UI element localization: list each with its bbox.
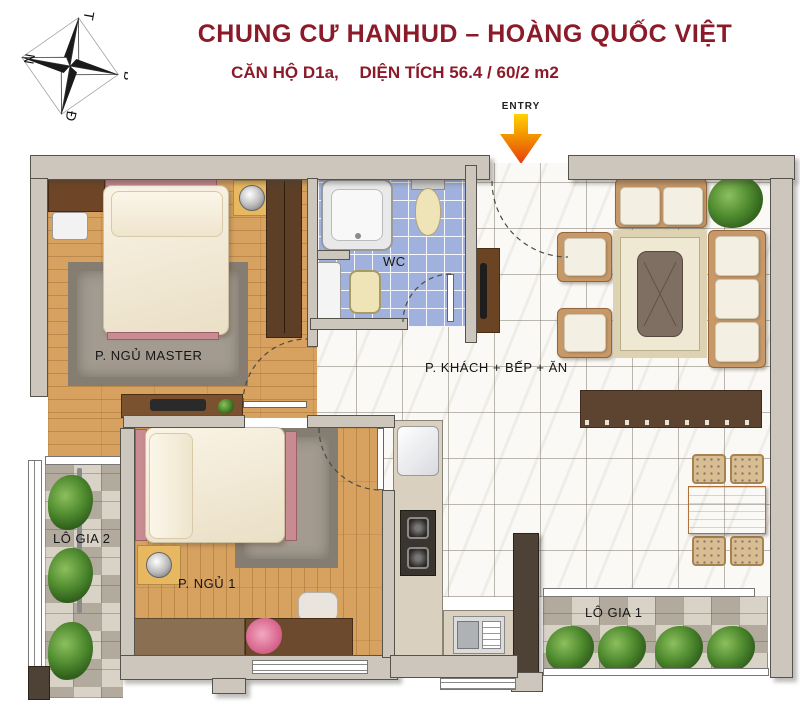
- sofa-cushion: [715, 322, 759, 362]
- sofa-cushion: [620, 187, 660, 225]
- bedroom1-door-leaf: [377, 428, 384, 490]
- wall-wc-bottom: [310, 318, 408, 330]
- coffee-table: [637, 251, 683, 337]
- sofa-cushion: [715, 279, 759, 319]
- master-wardrobe: [266, 178, 302, 338]
- master-bedroom-label: P. NGỦ MASTER: [95, 348, 202, 363]
- dining-table: [688, 486, 766, 534]
- wall-wc-right: [465, 165, 477, 343]
- wc-label: WC: [383, 254, 406, 269]
- sideboard-handles: [585, 420, 757, 425]
- armchair-cushion: [564, 238, 606, 276]
- bedroom1-lamp-icon: [146, 552, 172, 578]
- compass-west-label: T: [80, 10, 97, 22]
- wc-sink: [349, 270, 381, 314]
- armchair-cushion: [564, 314, 606, 352]
- master-door-leaf: [243, 401, 307, 408]
- unit-area: DIỆN TÍCH 56.4 / 60/2 m2: [360, 63, 559, 82]
- toilet-bowl: [415, 188, 441, 236]
- master-lamp-icon: [239, 185, 265, 211]
- loggia1-label: LÔ GIA 1: [585, 605, 642, 620]
- page-subtitle: CĂN HỘ D1a, DIỆN TÍCH 56.4 / 60/2 m2: [195, 63, 595, 83]
- wall-bedroom1-right: [382, 490, 395, 658]
- loggia2-corner-pier: [28, 666, 50, 700]
- loggia2-door-sill: [45, 456, 123, 465]
- bedroom1-nightstand: [137, 545, 181, 585]
- master-bed-pillow: [111, 191, 223, 237]
- wall-under-kitchen: [390, 655, 518, 678]
- tv-cabinet: [476, 248, 500, 333]
- kitchen-window: [440, 678, 516, 690]
- living-kitchen-label: P. KHÁCH + BẾP + ĂN: [425, 360, 568, 375]
- entry-arrow-icon: [498, 114, 544, 166]
- kitchen-sink: [453, 616, 505, 654]
- wall-bedroom1-left: [120, 428, 135, 658]
- sofa-2seat: [615, 178, 707, 228]
- dining-chair: [692, 454, 726, 484]
- armchair-2: [557, 308, 612, 358]
- loggia2-railing: [28, 460, 42, 698]
- sideboard: [580, 390, 762, 428]
- shower-tray: [321, 179, 393, 251]
- bedroom1-bed: [135, 427, 297, 545]
- floor-plan-page: CHUNG CƯ HANHUD – HOÀNG QUỐC VIỆT CĂN HỘ…: [0, 0, 800, 705]
- unit-name: CĂN HỘ D1a,: [231, 63, 339, 82]
- wall-top-right: [568, 155, 795, 180]
- compass-south-label: N: [21, 53, 39, 66]
- dining-chair: [730, 536, 764, 566]
- master-bed: [103, 179, 231, 343]
- sink-basin: [457, 621, 479, 649]
- tv-icon: [480, 263, 487, 319]
- master-nightstand: [52, 212, 88, 240]
- sink-drainboard: [482, 621, 501, 649]
- desk-plant-icon: [218, 399, 234, 414]
- burner-icon: [407, 517, 429, 539]
- wall-mid-horizontal-b: [307, 415, 395, 428]
- laptop: [150, 399, 206, 411]
- loggia1-window-sill: [543, 588, 755, 597]
- wardrobe-seam: [284, 181, 285, 333]
- compass-rose-icon: T B Đ N: [12, 8, 128, 124]
- fridge: [397, 426, 439, 476]
- compass-north-label: B: [120, 70, 128, 82]
- entry-label: ENTRY: [493, 101, 549, 112]
- bed1-pillow: [149, 433, 193, 539]
- dining-chair: [692, 536, 726, 566]
- wall-left: [30, 178, 48, 397]
- shower-drain-icon: [355, 233, 361, 239]
- bed1-footrail: [285, 431, 297, 541]
- sofa-cushion: [715, 236, 759, 276]
- armchair-1: [557, 232, 612, 282]
- bedroom1-label: P. NGỦ 1: [178, 576, 236, 591]
- bedroom1-window: [252, 660, 368, 674]
- sofa-3seat: [708, 230, 766, 368]
- wall-top-left: [30, 155, 490, 180]
- page-title: CHUNG CƯ HANHUD – HOÀNG QUỐC VIỆT: [155, 20, 775, 49]
- loggia1-outer-rail: [543, 668, 769, 676]
- sofa-cushion: [663, 187, 703, 225]
- loggia2-label: LÔ GIA 2: [53, 531, 110, 546]
- wc-door-leaf: [447, 274, 454, 322]
- dining-chair: [730, 454, 764, 484]
- bedroom1-dresser-left: [133, 618, 245, 658]
- burner-icon: [407, 547, 429, 569]
- wall-mid-horizontal-a: [123, 415, 245, 428]
- compass-east-label: Đ: [63, 110, 81, 123]
- cooktop: [400, 510, 436, 576]
- wall-right: [770, 178, 793, 678]
- wall-bottom-bump: [212, 678, 246, 694]
- master-headboard-cabinet: [48, 178, 105, 212]
- master-bed-footrail: [107, 332, 219, 340]
